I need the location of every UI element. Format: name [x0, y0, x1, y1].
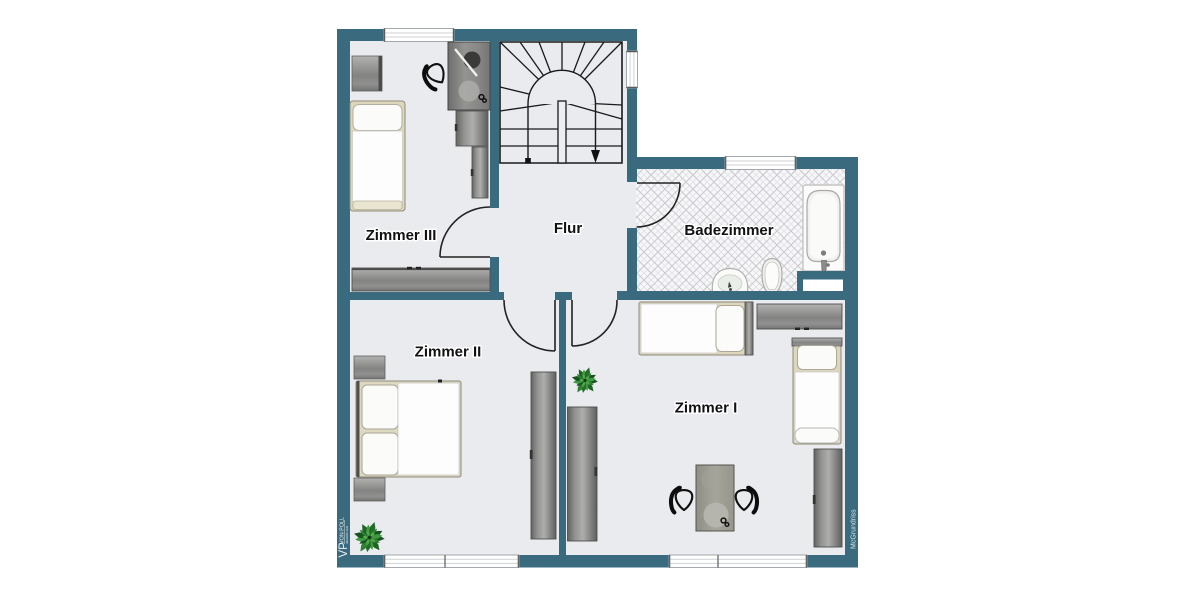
svg-text:Zimmer II: Zimmer II: [415, 344, 482, 361]
svg-text:Zimmer III: Zimmer III: [366, 227, 437, 244]
svg-text:Zimmer I: Zimmer I: [675, 400, 738, 417]
svg-text:McGrundriss: McGrundriss: [851, 509, 858, 549]
svg-text:Flur: Flur: [554, 220, 582, 237]
svg-text:IMMOBILIEN: IMMOBILIEN: [345, 526, 349, 544]
svg-text:Badezimmer: Badezimmer: [684, 222, 773, 239]
